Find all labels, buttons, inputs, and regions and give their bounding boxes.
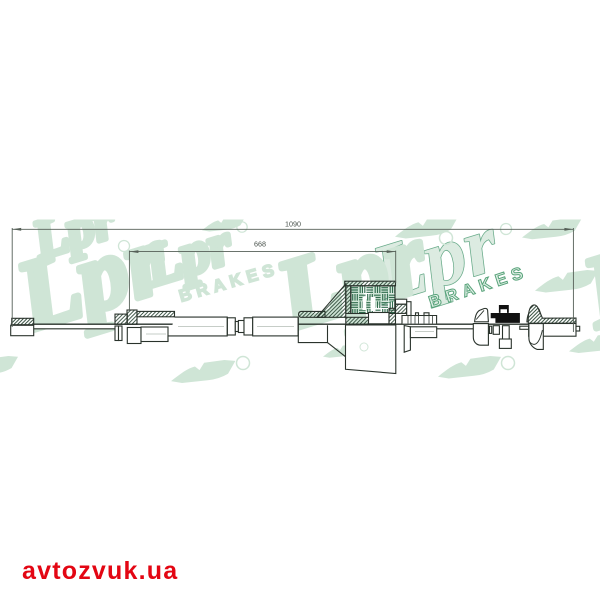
svg-text:avtozvuk.ua: avtozvuk.ua	[22, 557, 178, 585]
svg-text:1090: 1090	[285, 220, 301, 229]
svg-text:668: 668	[254, 239, 266, 248]
